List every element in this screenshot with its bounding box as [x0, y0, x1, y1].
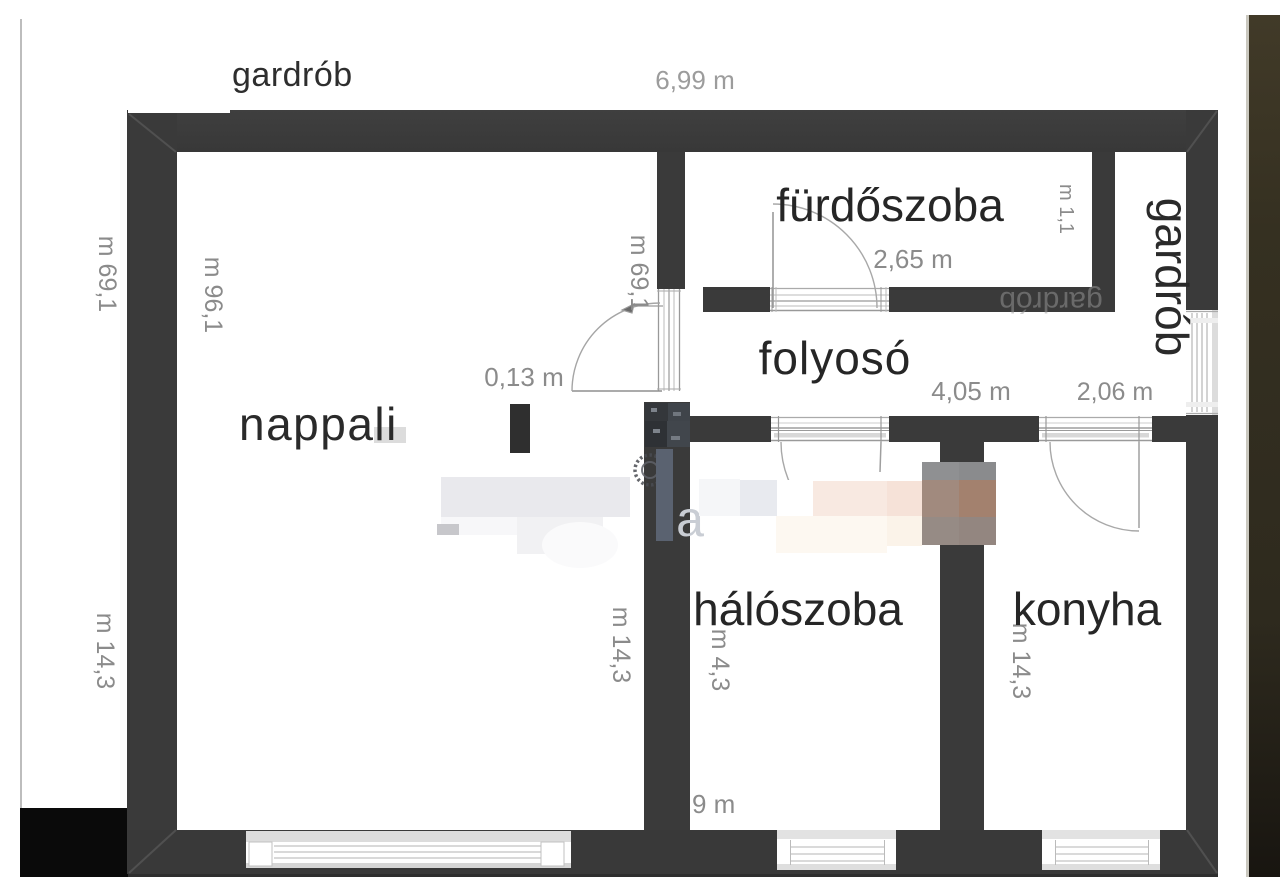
svg-text:folyosó: folyosó — [759, 332, 912, 384]
svg-text:nappali: nappali — [239, 398, 398, 450]
svg-text:m 96,1: m 96,1 — [199, 257, 227, 333]
svg-text:m 14,3: m 14,3 — [91, 613, 119, 689]
svg-text:hálószoba: hálószoba — [693, 583, 903, 635]
svg-text:gardrób: gardrób — [1146, 198, 1198, 357]
svg-text:gardrób: gardrób — [232, 56, 353, 94]
svg-text:0,13 m: 0,13 m — [484, 362, 564, 392]
svg-text:gardrób: gardrób — [999, 285, 1102, 318]
svg-text:m 1,1: m 1,1 — [1055, 184, 1077, 234]
svg-text:2,06 m: 2,06 m — [1077, 378, 1153, 406]
svg-text:fürdőszoba: fürdőszoba — [776, 179, 1004, 231]
svg-text:m 69,1: m 69,1 — [93, 236, 121, 312]
svg-text:m 4,3: m 4,3 — [706, 629, 734, 692]
svg-text:m 14,3: m 14,3 — [607, 607, 635, 683]
svg-text:2,65 m: 2,65 m — [873, 244, 953, 274]
svg-text:6,99 m: 6,99 m — [655, 65, 735, 95]
svg-text:m 69,1: m 69,1 — [625, 235, 653, 311]
svg-text:konyha: konyha — [1013, 583, 1162, 635]
svg-text:4,05 m: 4,05 m — [931, 376, 1011, 406]
svg-text:9 m: 9 m — [692, 789, 735, 819]
